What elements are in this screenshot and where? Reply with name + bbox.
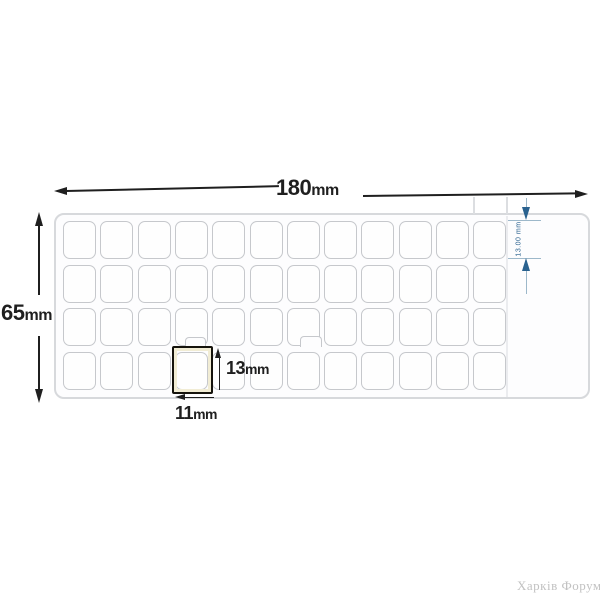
cell-height-dim-line xyxy=(219,357,221,390)
sticker-cell xyxy=(63,352,96,390)
cut-line xyxy=(506,216,508,397)
sticker-cell xyxy=(399,352,432,390)
blue-dim-tail-top xyxy=(526,198,527,207)
sticker-cell xyxy=(287,352,320,390)
width-dim-label: 180mm xyxy=(276,177,339,199)
highlighted-sticker-cell xyxy=(172,346,213,394)
sticker-cell xyxy=(138,308,171,346)
sticker-cell xyxy=(250,221,283,259)
sticker-cell xyxy=(436,352,469,390)
sticker-cell xyxy=(361,352,394,390)
sticker-cell xyxy=(138,352,171,390)
sticker-cell xyxy=(63,308,96,346)
cell-width-dim-line xyxy=(184,397,214,399)
height-dim-label: 65mm xyxy=(1,302,52,324)
row-height-note-label: 13.00 mm xyxy=(516,221,523,256)
blue-extension-line-top xyxy=(508,220,541,221)
sticker-cell xyxy=(138,221,171,259)
sticker-cell xyxy=(63,265,96,303)
sticker-cell xyxy=(250,308,283,346)
width-value: 180 xyxy=(276,175,311,200)
sticker-cell xyxy=(212,265,245,303)
width-dim-line-right xyxy=(363,192,576,197)
blue-arrow-up-icon xyxy=(522,258,530,271)
cell-width-unit: mm xyxy=(193,406,217,422)
extension-line xyxy=(473,197,475,214)
peel-tab xyxy=(300,336,322,347)
sticker-cell xyxy=(473,308,506,346)
arrow-right-icon xyxy=(575,190,588,198)
sticker-cell xyxy=(324,221,357,259)
width-unit: mm xyxy=(311,182,338,199)
sticker-sheet xyxy=(54,213,590,399)
height-value: 65 xyxy=(1,300,24,325)
cell-height-unit: mm xyxy=(245,361,269,377)
sticker-cell xyxy=(63,221,96,259)
sticker-cell xyxy=(399,265,432,303)
height-dim-line-bottom xyxy=(38,336,40,391)
sticker-cell xyxy=(436,221,469,259)
diagram-stage: 180mm 65mm 13mm 11mm 13.00 mm Харків Фор… xyxy=(0,0,600,600)
sticker-cell xyxy=(175,221,208,259)
cell-height-value: 13 xyxy=(226,358,245,378)
sticker-cell xyxy=(361,265,394,303)
sticker-cell xyxy=(361,308,394,346)
sticker-cell xyxy=(287,265,320,303)
sticker-cell xyxy=(361,221,394,259)
sticker-cell xyxy=(100,352,133,390)
sticker-cell xyxy=(473,352,506,390)
extension-line xyxy=(506,197,508,214)
sticker-cell xyxy=(436,265,469,303)
cell-width-dim-label: 11mm xyxy=(170,404,222,422)
sticker-cell xyxy=(212,308,245,346)
cell-width-value: 11 xyxy=(175,403,193,423)
sticker-cell xyxy=(473,265,506,303)
width-dim-line-left xyxy=(66,185,279,192)
blue-dim-tail-bottom xyxy=(526,271,527,294)
sticker-cell xyxy=(324,308,357,346)
watermark-text: Харків Форум xyxy=(517,578,600,594)
sticker-cell xyxy=(436,308,469,346)
sticker-cell xyxy=(138,265,171,303)
sticker-cell xyxy=(212,221,245,259)
sticker-cell xyxy=(250,265,283,303)
arrow-up-icon xyxy=(35,212,43,226)
cell-height-dim-label: 13mm xyxy=(226,359,269,377)
blue-arrow-down-icon xyxy=(522,207,530,220)
sticker-cell xyxy=(175,265,208,303)
sticker-cell xyxy=(324,265,357,303)
sticker-cell xyxy=(324,352,357,390)
sticker-cell xyxy=(399,308,432,346)
sticker-cell xyxy=(399,221,432,259)
sticker-cell xyxy=(100,265,133,303)
sticker-cell xyxy=(287,221,320,259)
sticker-cell xyxy=(473,221,506,259)
arrow-down-icon xyxy=(35,389,43,403)
sticker-cell xyxy=(100,308,133,346)
height-dim-line-top xyxy=(38,225,40,295)
height-unit: mm xyxy=(24,307,51,324)
sticker-cell xyxy=(100,221,133,259)
